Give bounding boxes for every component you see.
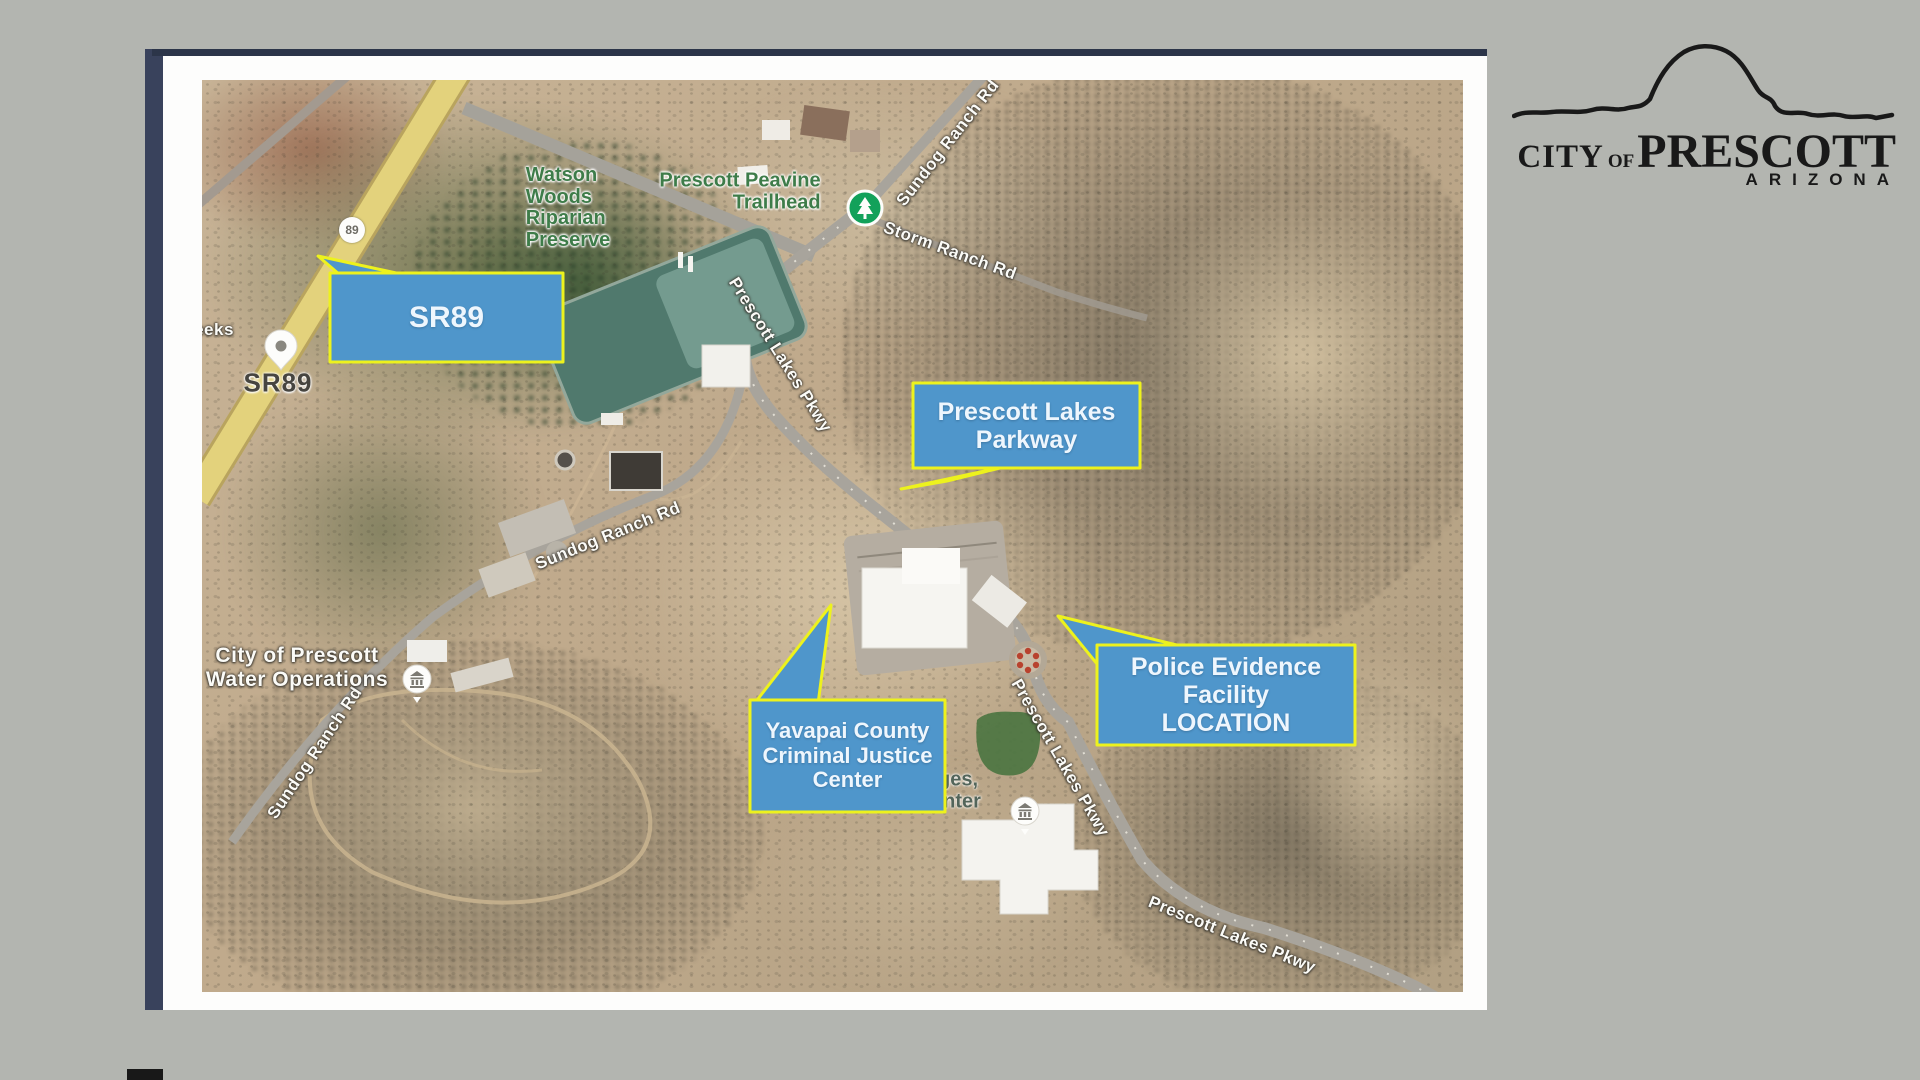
logo-city-text: CITY	[1517, 139, 1604, 176]
slide-frame-left	[145, 49, 163, 1010]
parkway-callout-label: Prescott Lakes Parkway	[913, 383, 1140, 468]
city-of-prescott-logo: CITY OF PRESCOTT ARIZONA	[1512, 36, 1902, 186]
satellite-map: eeks 89 SR89 Watson Woods Riparian Prese…	[202, 80, 1463, 992]
logo-arizona-text: ARIZONA	[1746, 170, 1900, 190]
justice-callout-pointer	[754, 605, 831, 704]
presentation-slide-screen: eeks 89 SR89 Watson Woods Riparian Prese…	[0, 0, 1920, 1080]
slide-frame-top	[152, 49, 1487, 56]
justice-callout-label: Yavapai County Criminal Justice Center	[750, 700, 945, 812]
sr89-callout-label: SR89	[330, 273, 563, 362]
police-callout-label: Police Evidence Facility LOCATION	[1097, 645, 1355, 745]
callout-layer	[202, 80, 1463, 992]
logo-mountain-ridge-icon	[1512, 36, 1896, 126]
corner-mark	[127, 1069, 163, 1080]
logo-of-text: OF	[1608, 151, 1634, 173]
